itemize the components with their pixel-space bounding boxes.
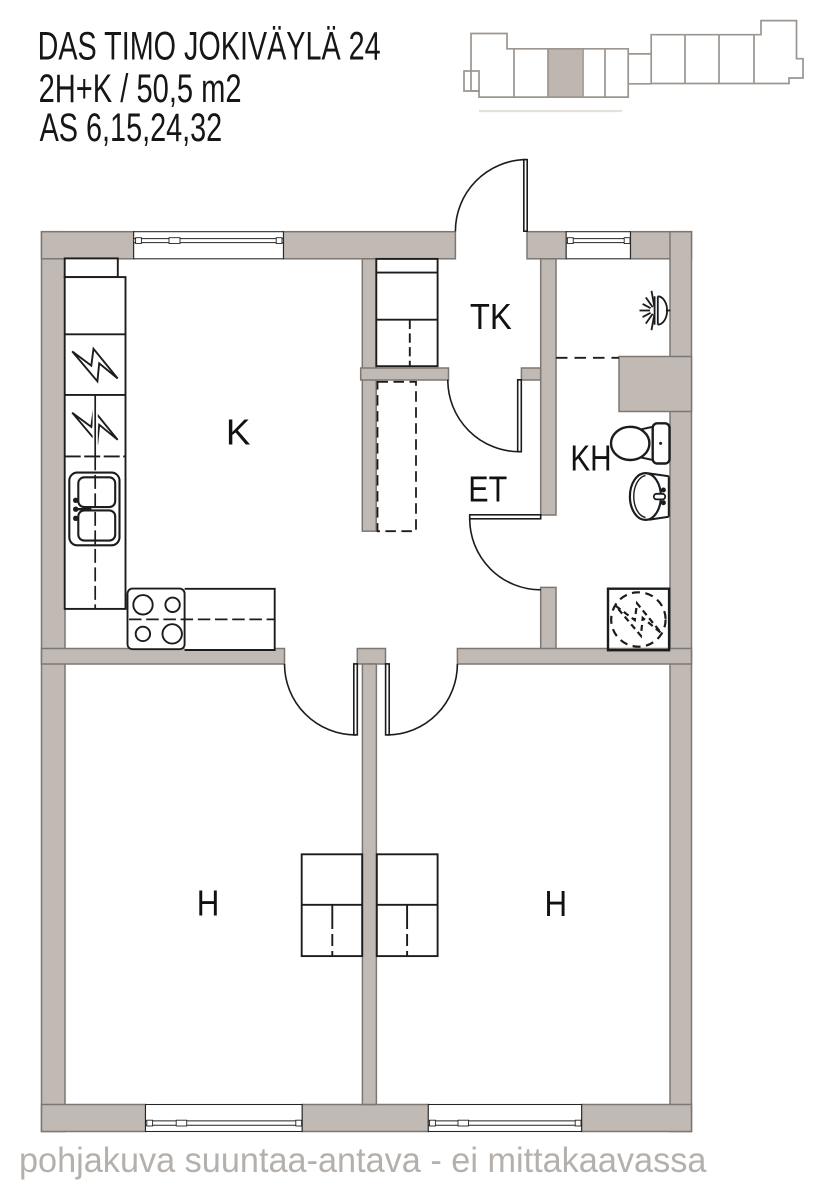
svg-text:H: H (197, 883, 220, 924)
svg-text:K: K (226, 412, 251, 453)
svg-text:AS 6,15,24,32: AS 6,15,24,32 (40, 106, 223, 150)
svg-text:ET: ET (468, 469, 507, 510)
svg-text:H: H (545, 883, 568, 924)
svg-text:2H+K / 50,5 m2: 2H+K / 50,5 m2 (39, 67, 242, 111)
svg-text:pohjakuva suuntaa-antava - ei: pohjakuva suuntaa-antava - ei mittakaava… (19, 1140, 707, 1180)
svg-text:TK: TK (470, 296, 512, 337)
svg-text:KH: KH (570, 438, 611, 479)
svg-text:DAS TIMO JOKIVÄYLÄ 24: DAS TIMO JOKIVÄYLÄ 24 (38, 25, 381, 69)
